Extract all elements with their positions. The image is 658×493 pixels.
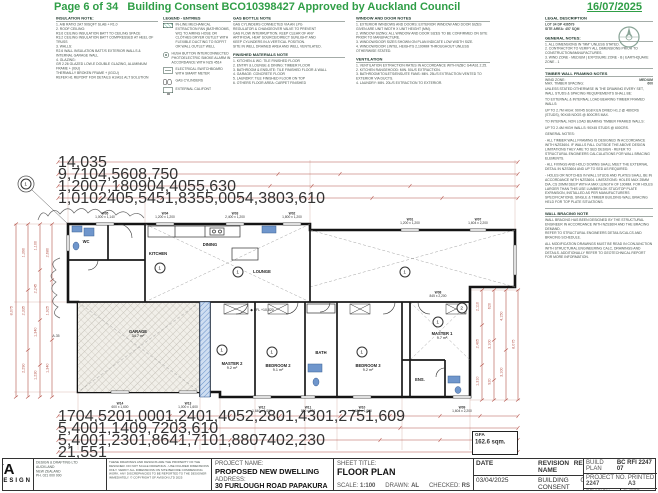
dim-col-left-1: 8,075 [7,224,15,397]
dim-value: 1,230 [33,371,38,380]
legend-label: HUSH BUTTON INTERCONNECTED PHOTOELECTRIC… [172,52,232,65]
ventilation-lines: 1. VENTILATION EXTRACTION RATES IN ACCOR… [356,64,490,86]
ventilation-title: VENTILATION [356,57,490,63]
note-line: 4. WINDOW/DOOR LINTEL HEIGHTS 2,100MM TH… [356,45,490,54]
gfa-value: 162.6 sqm. [475,439,509,445]
sidebar-divider [545,68,653,69]
scale-field: SCALE: 1:100 [337,483,375,489]
dim-value: 4,150 [499,311,504,320]
dim-value: 2,405 [475,339,480,348]
insulation-note-title: INSULATION NOTE: [56,16,158,22]
timber-paragraph: UP TO 2.7M HIGH: 90X45 SG8 KILN DRIED H1… [545,109,653,118]
dim-value: 1,310 [475,377,480,386]
dim-col-left-3: 1,1002,2451,3401,230 [31,224,39,397]
legend-entry: ELECTRICAL SWITCHBOARD WITH SMART METER [163,68,231,77]
dim-value: 1,835 [165,190,205,207]
legend-title: LEGEND - ENTRIES [163,16,231,22]
circled-marker: 1 [21,179,32,190]
window-tag: W021,800 x 1,200 [282,212,302,219]
dim-value: 2,290 [21,363,26,372]
gas-bottle-lines: GAS CYLINDERS CONNECTED VIA AN LPGREGULA… [233,23,345,49]
right-notes-sidebar: LEGAL DESCRIPTION LOT 34 DP 436579SITE A… [545,16,653,454]
misc-label: A.35 [52,334,59,338]
window-tag: W071,604 x 2,200 [468,218,488,225]
circled-marker: 1 [217,345,228,356]
insulation-note-column: INSULATION NOTE: 1. A/B RATIO 2A7 90SQFT… [56,16,158,145]
dim-row-bottom-3: 5,4001,2301,8641,7101,8807402,230 [58,432,518,440]
dim-col-left-4: 2,6801,9251,340 [43,224,51,397]
window-tag: W051,000 x 1,140 [95,212,115,219]
window-tag: W032,400 x 1,200 [225,212,245,219]
window-door-lines: 1. EXTERIOR WINDOWS AND DOORS: EXTERIOR … [356,23,490,54]
dim-value: 2,335 [21,306,26,315]
timber-paragraph: - ALL FIXINGS AND HOLD DOWNS SHALL MEET … [545,163,653,172]
note-line: 6. OTHERS FLOOR AREA: CARPET FINISHED [233,82,345,86]
dim-value: 2,680 [45,248,50,257]
dim-value: 5,005 [205,190,245,207]
dim-col-right-2: 6203,100920 [485,288,493,400]
logo: YA DESIGN [3,459,33,490]
note-line: R2.6 WALL INSULATION BATT/S EXTERIOR WAL… [56,49,158,58]
timber-paragraph: - ALL TIMBER WALL FRAMING IS DESIGNED IN… [545,139,653,161]
note-line: 4. LAUNDRY: MIN. 20L/S EXTRACTION TO EXT… [356,82,490,86]
circled-marker: 1 [267,347,278,358]
dim-value: 5,545 [125,190,165,207]
general-note-item: 3. WIND ZONE - MEDIUM | EXPOSURE ZONE - … [545,56,653,65]
note-line: 1. EXTERIOR WINDOWS AND DOORS: EXTERIOR … [356,23,490,32]
timber-framing-kv: WIND ZONE: MEDIUM MAX. TIMBER SPACING: 6… [545,78,653,85]
legend-label: GAS CYLINDERS [176,79,204,83]
smoke-alarm-icon [163,52,169,58]
timber-framing-paragraphs: UNLESS STATED OTHERWISE IN THE DRAWING E… [545,87,653,205]
room-label: LOUNGE [253,270,271,275]
dim-col-right-1: 2,1102,4051,310 [473,288,481,400]
window-tag: W14600 x 1,600 [112,402,129,409]
room-label: MASTER 2 9.2 m² [222,361,243,370]
window-tag: W091,604 x 2,200 [452,406,472,413]
note-line: 2. WINDOW SIZING: ALL WINDOW AND DOOR SI… [356,32,490,41]
dim-value: 1,010 [58,190,98,207]
note-line: SITE IN WELL DRAINED AREA AND WELL VENTI… [233,45,345,49]
revision-table-header: DATE REVISION NAME REV [474,459,583,476]
legend-entry: EXTERNAL CALIFONT [163,88,231,94]
consent-date: 16/07/2025 [587,1,642,13]
switchboard-icon [163,68,173,74]
legend-entry: GAS CYLINDERS [163,79,231,85]
window-tag: W11800 x 600 [301,406,315,413]
wall-bracing-title: WALL BRACING NOTE [545,211,653,217]
note-line: 3. BATHROOM/TOILETS/ENSUITE FANS: MIN. 2… [356,73,490,82]
circled-marker: 1 [433,317,444,328]
circled-marker: 1 [357,347,368,358]
extract-fan-icon [163,23,173,28]
kv-key: MAX. TIMBER SPACING: [545,82,584,86]
room-label: ENS. [415,378,425,383]
room-label: DINING [203,243,217,248]
legend-entry: HUSH BUTTON INTERCONNECTED PHOTOELECTRIC… [163,52,231,65]
room-name: LOUNGE [253,270,271,275]
gfa-label: GFA [475,433,507,438]
room-label: BEDROOM 3 9.2 m² [356,363,381,372]
document-page: Page 6 of 34 Building Consent BCO1039842… [0,0,658,493]
circled-marker: 1 [155,263,166,274]
circled-marker: 1 [400,267,411,278]
insulation-note-lines: 1. A/B RATIO 2A7 90SQFT SLAB + R1.02. RO… [56,23,158,80]
modification-note: ALL MODIFICATION DRAWINGS MUST BE READ I… [545,242,653,260]
revision-row: 03/04/2025 BUILDING CONSENT 01 [474,476,583,490]
legend-label: IN-LINE MECHANICAL EXTRACTION FAN (BATHR… [176,23,232,49]
gas-cylinders-icon [163,79,173,85]
checked-field: CHECKED: RS [429,483,470,489]
sheet-number-cell: SHEET A [621,489,657,490]
dim-value: 1,925 [45,306,50,315]
logo-text: YA [3,461,15,478]
room-area: 34.7 m² [129,334,147,338]
dim-value: 620 [487,303,492,309]
dim-value: 2,110 [475,302,480,311]
timber-paragraph: UNLESS STATED OTHERWISE IN THE DRAWING E… [545,87,653,96]
logo-subtext: DESIGN [3,478,32,484]
dim-value: 2,245 [33,284,38,293]
room-area: 9.1 m² [266,368,291,372]
window-tag: W041,200 x 1,200 [155,212,175,219]
disclaimer-text: THESE DRAWINGS AND DESIGNS ARE THE PROPE… [109,461,209,480]
dim-value: 4,380 [245,190,285,207]
dim-row-bottom-4: 21,551 [58,444,518,452]
room-name: WC [83,240,90,245]
califont-icon [163,88,173,94]
room-name: DINING [203,243,217,248]
kv-value: 600 [647,82,653,86]
timber-kv-row: MAX. TIMBER SPACING: 600 [545,82,653,86]
room-label: BEDROOM 2 9.1 m² [266,363,291,372]
company-details: DESIGN & DRAFTING LTDAUCKLANDNEW ZEALAND… [33,459,106,490]
room-label: GARAGE 34.7 m² [129,329,147,338]
sidebar-divider-2 [545,208,653,209]
dim-row-top-2: 9,7104,5608,750 [58,166,518,174]
wall-bracing-line: WALL BRACING HAS BEEN DESIGNED BY THE ST… [545,218,653,231]
page-count-label: Page 6 of 34 [54,1,118,13]
room-name: ENS. [415,378,425,383]
dim-value: 240 [98,190,125,207]
disclaimer: THESE DRAWINGS AND DESIGNS ARE THE PROPE… [106,459,211,490]
dim-value: 3,100 [487,339,492,348]
dim-value: 8,075 [511,339,516,348]
legend-entry: IN-LINE MECHANICAL EXTRACTION FAN (BATHR… [163,23,231,49]
drawn-field: DRAWN: AL [385,483,419,489]
timber-paragraph: UP TO 2.4M HIGH WALLS: 90X45 STUDS @ 600… [545,126,653,130]
room-label: BATH [315,351,326,356]
dim-col-left-2: 1,3902,3352,290 [19,224,27,397]
wall-bracing-line: REFER TO STRUCTURAL ENGINEERS DETAILS/CA… [545,232,653,241]
dim-col-right-3: 4,1503,100 [497,288,505,400]
sheet-title-value: FLOOR PLAN [337,467,470,477]
dim-row-top-3: 1,2007,180904,4055,630 [58,178,518,186]
timber-paragraph: - HOLES OR NOTCHES IN WALL STUDS AND PLA… [545,174,653,205]
revision-number-cell: REVISION 02 [584,489,621,490]
room-name: BATH [315,351,326,356]
room-label: KITCHEN [149,252,167,257]
timber-paragraph: TO INTERNAL NON LOAD BEARING TIMBER FRAM… [545,120,653,124]
consent-ref-label: BUILD PLAN [586,460,617,472]
window-tag: W011,200 x 1,200 [400,218,420,225]
sheet-info-cell: BUILD PLAN BC RFI 2247 07 PROJECT NO. 22… [583,459,657,490]
note-line: R3.2 CEILING INSULATION BATT COMPRESSED … [56,36,158,45]
timber-framing-title: TIMBER WALL FRAMING NOTES [545,71,653,77]
window-door-column: WINDOW AND DOOR NOTES 1. EXTERIOR WINDOW… [356,16,490,156]
finished-materials-title: FINISHED MATERIALS NOTE [233,52,345,58]
dim-col-right-4: 8,075 [509,288,517,400]
north-arrow-icon [616,24,642,55]
timber-paragraph: TO EXTERNAL & INTERNAL LOAD BEARING TIMB… [545,98,653,107]
dim-value: 1,100 [33,241,38,250]
consent-title: Building Consent BCO10398427 Approved by… [127,1,460,13]
legend-label: ELECTRICAL SWITCHBOARD WITH SMART METER [176,68,232,77]
address-value: 30 FURLOUGH ROAD PAPAKURA 2113 [215,483,330,490]
revision-table: DATE REVISION NAME REV 03/04/2025 BUILDI… [473,459,583,490]
dim-value: 1,390 [21,248,26,257]
printed-field: PRINTED A3 [628,475,655,487]
gas-bottle-title: GAS BOTTLE NOTE [233,16,345,22]
project-no-field: PROJECT NO. 2247 [586,475,628,487]
dim-row-bottom-2: 5,4001,1409,7203,610 [58,420,518,428]
room-label: MASTER 1 9.7 m² [432,331,453,340]
dim-row-top-4: 1,0102405,5451,8355,0054,3803,610 [58,190,518,198]
gas-materials-column: GAS BOTTLE NOTE GAS CYLINDERS CONNECTED … [233,16,345,156]
legal-description-title: LEGAL DESCRIPTION [545,16,653,22]
sheet-title-cell: SHEET TITLE: FLOOR PLAN SCALE: 1:100 DRA… [333,459,473,490]
wall-bracing-lines: WALL BRACING HAS BEEN DESIGNED BY THE ST… [545,218,653,240]
circled-marker: 1 [233,267,244,278]
consent-header: Page 6 of 34 Building Consent BCO1039842… [54,1,460,13]
consent-ref-value: BC RFI 2247 07 [617,460,655,472]
window-tag: W08845 x 2,200 [430,291,447,298]
room-area: 9.2 m² [356,368,381,372]
circled-marker: 2 [457,303,468,314]
timber-paragraph: GENERAL NOTES: [545,133,653,137]
legend-label: EXTERNAL CALIFONT [176,88,212,92]
note-line: REFER H1 REPORT FOR DETAILS H1/AS1 ALT S… [56,76,158,80]
floor-plan: 14,035 9,7104,5608,750 1,2007,180904,405… [10,150,530,458]
ffl-label: ◆ FFL +10,820 [250,308,273,312]
dim-value: 8,075 [9,306,14,315]
dim-value: 3,610 [285,190,325,207]
title-block: YA DESIGN DESIGN & DRAFTING LTDAUCKLANDN… [2,458,656,491]
room-label: WC [83,240,90,245]
dim-value: 1,340 [33,327,38,336]
gfa-box: GFA 162.6 sqm. [472,431,518,455]
dim-value: 1,340 [45,363,50,372]
company-line: PH. 021 000 000 [36,474,104,478]
project-name-value: PROPOSED NEW DWELLING [215,467,330,476]
finished-materials-lines: 1. KITCHEN & WC: TILE FINISHED FLOOR2. E… [233,59,345,85]
legend-entries: IN-LINE MECHANICAL EXTRACTION FAN (BATHR… [163,23,231,93]
note-line: GR 2.26 GLAZED LOW-E DOUBLE GLAZING, ALU… [56,63,158,72]
window-tag: W101,640 x 1,600 [352,406,372,413]
window-tag: W131,000 x 1,600 [178,402,198,409]
dim-value: 920 [487,379,492,385]
room-area: 9.2 m² [222,366,243,370]
dim-row-top-1: 14,035 [58,154,518,162]
dim-value: 3,100 [499,367,504,376]
window-tag: W121,640 x 1,600 [252,406,272,413]
room-area: 9.7 m² [432,336,453,340]
project-cell: PROJECT NAME: PROPOSED NEW DWELLING ADDR… [211,459,333,490]
room-name: KITCHEN [149,252,167,257]
window-door-title: WINDOW AND DOOR NOTES [356,16,490,22]
